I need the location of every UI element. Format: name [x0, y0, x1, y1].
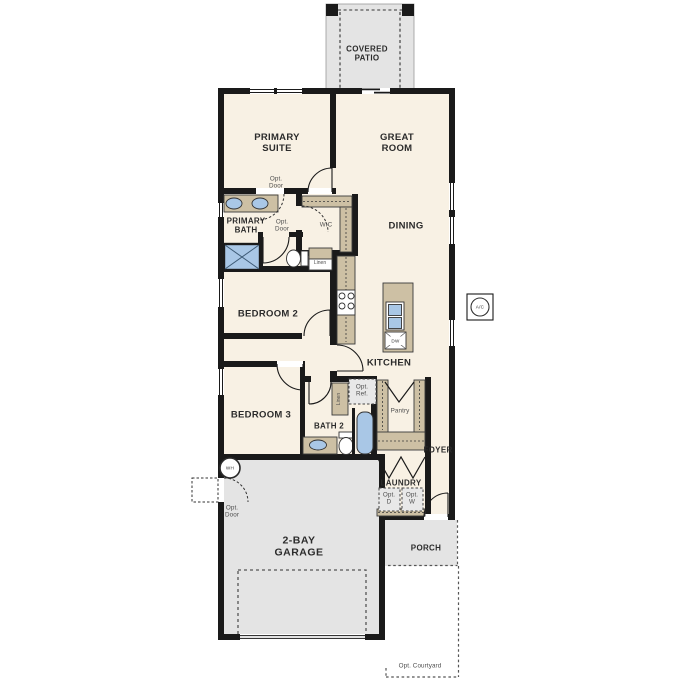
opt-ref-box: [349, 379, 376, 404]
island-sink-icon: [386, 302, 404, 330]
linen-closet: [332, 383, 348, 415]
opt-dryer-box: [379, 488, 400, 511]
floor-plan-drawing: [0, 0, 687, 687]
toilet-icon: [287, 250, 309, 267]
porch-floor: [385, 520, 457, 566]
sink-icon: [252, 198, 268, 209]
sink-icon: [226, 198, 242, 209]
garage-floor: [221, 455, 382, 636]
opt-door-stoop: [192, 478, 218, 502]
water-heater-icon: [220, 458, 240, 478]
toilet-icon: [339, 432, 353, 455]
floor-plan: COVERED PATIO PRIMARY SUITE GREAT ROOM D…: [0, 0, 687, 687]
bathtub-icon: [357, 412, 373, 454]
pantry-shelf: [377, 432, 425, 450]
linen-shelf: [309, 248, 332, 259]
cooktop-icon: [337, 290, 355, 315]
opt-washer-box: [402, 488, 423, 511]
dishwasher-icon: [385, 332, 406, 349]
shower-icon: [224, 244, 260, 270]
patio-post-icon: [402, 4, 414, 16]
sink-icon: [310, 440, 327, 450]
ac-unit-icon: [467, 294, 493, 320]
patio-post-icon: [326, 4, 338, 16]
covered-patio-area: [326, 4, 414, 91]
